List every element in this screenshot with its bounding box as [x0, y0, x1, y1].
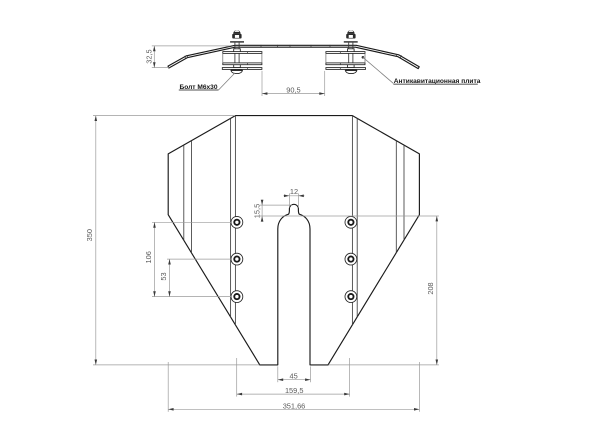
- svg-text:350: 350: [85, 229, 94, 241]
- svg-text:32,5: 32,5: [144, 49, 153, 63]
- svg-text:159,5: 159,5: [285, 386, 304, 395]
- svg-text:53: 53: [159, 272, 168, 280]
- svg-text:15,5: 15,5: [253, 204, 262, 218]
- svg-text:12: 12: [290, 187, 298, 196]
- svg-text:106: 106: [144, 251, 153, 263]
- svg-text:90,5: 90,5: [286, 86, 300, 95]
- svg-text:208: 208: [426, 282, 435, 294]
- svg-text:45: 45: [289, 371, 297, 380]
- svg-text:351,66: 351,66: [283, 401, 306, 410]
